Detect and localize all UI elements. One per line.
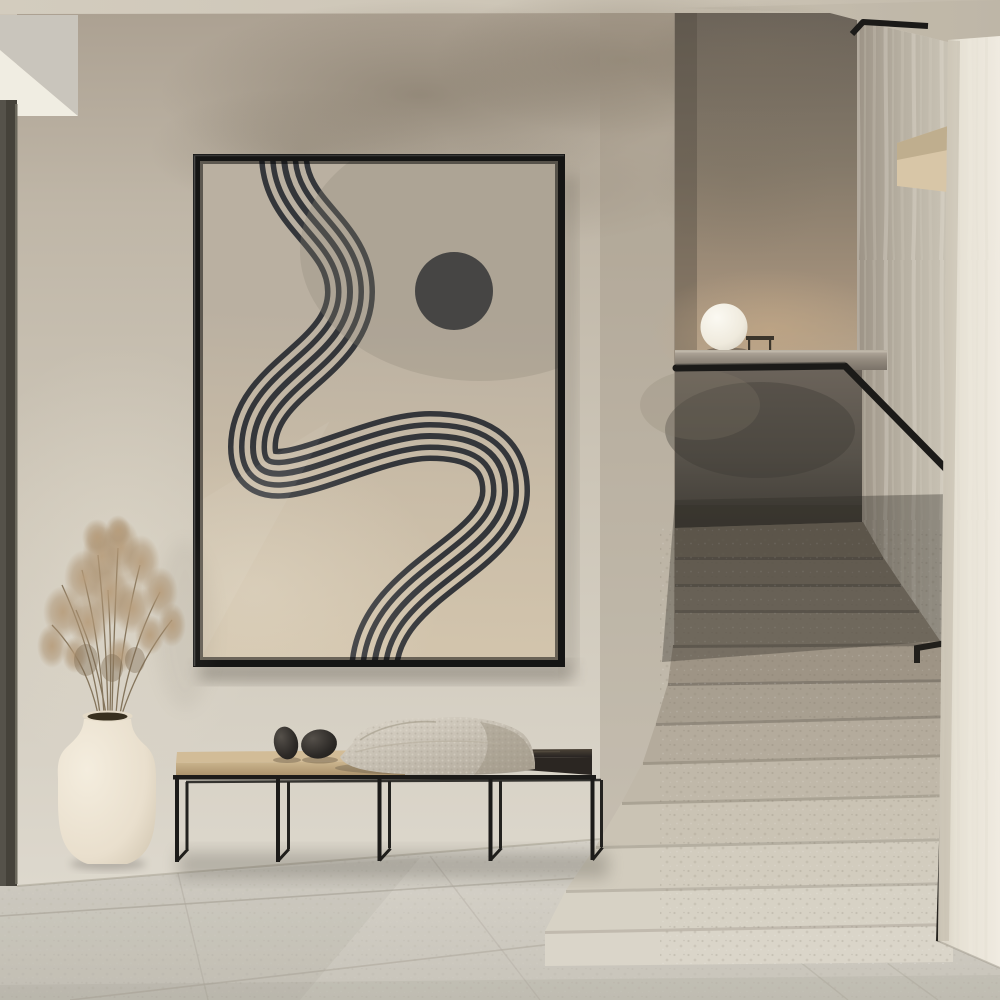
guard-wall-stain [640, 370, 760, 440]
scene-canvas [0, 0, 1000, 1000]
door-panel-edge [15, 104, 18, 884]
stairwell-smudge [630, 0, 890, 120]
bench-front-rail [173, 775, 596, 780]
right-wall [938, 36, 1000, 968]
upper-steps-shadow [662, 494, 953, 662]
hallway-photo: Minimalist beige hallway: a large black-… [0, 0, 1000, 1000]
left-door-panel [0, 100, 18, 886]
door-panel-highlight [0, 100, 6, 886]
vase-mouth [88, 713, 128, 721]
sphere-lamp [701, 304, 748, 351]
bench-floor-shadow [178, 852, 608, 878]
